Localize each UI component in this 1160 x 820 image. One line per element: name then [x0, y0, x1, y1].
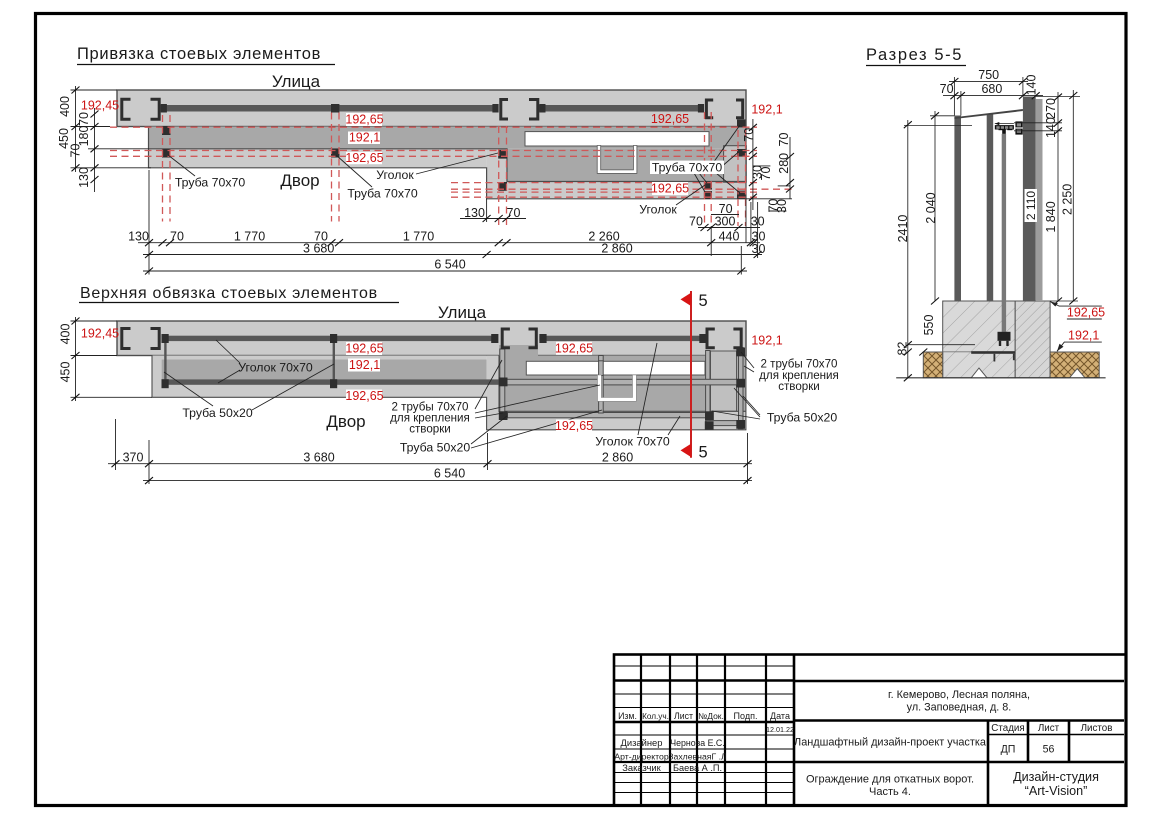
svg-text:створки: створки — [778, 380, 820, 393]
svg-text:Труба 50х20: Труба 50х20 — [182, 406, 252, 420]
svg-text:70: 70 — [77, 112, 91, 126]
svg-text:Дизайнер: Дизайнер — [621, 737, 663, 748]
svg-text:450: 450 — [59, 362, 73, 383]
svg-text:70: 70 — [689, 215, 703, 229]
svg-text:70: 70 — [777, 133, 791, 147]
svg-text:1 840: 1 840 — [1044, 201, 1058, 232]
svg-text:Ограждение для откатных ворот.: Ограждение для откатных ворот. — [806, 774, 974, 786]
svg-text:Заказчик: Заказчик — [622, 762, 661, 773]
svg-text:270: 270 — [1044, 98, 1058, 119]
svg-text:“Art-Vision”: “Art-Vision” — [1025, 784, 1088, 798]
svg-text:70: 70 — [69, 144, 83, 158]
svg-text:192,65: 192,65 — [1067, 306, 1105, 320]
svg-text:440: 440 — [719, 229, 740, 243]
svg-text:550: 550 — [922, 315, 936, 336]
svg-text:192,1: 192,1 — [349, 131, 380, 145]
svg-text:130: 130 — [77, 167, 91, 188]
svg-text:Кол.уч.: Кол.уч. — [642, 712, 669, 721]
svg-text:Уголок 70х70: Уголок 70х70 — [238, 360, 313, 374]
svg-text:1 770: 1 770 — [403, 229, 434, 243]
svg-text:192,65: 192,65 — [345, 151, 383, 165]
svg-text:12.01.22: 12.01.22 — [766, 725, 794, 734]
svg-text:ул. Заповедная, д. 8.: ул. Заповедная, д. 8. — [907, 702, 1012, 714]
svg-text:Труба 50х20: Труба 50х20 — [767, 411, 837, 425]
svg-text:Двор: Двор — [326, 412, 365, 431]
svg-text:192,1: 192,1 — [1068, 329, 1099, 343]
svg-text:2 040: 2 040 — [924, 192, 938, 223]
svg-text:140: 140 — [1044, 117, 1058, 138]
svg-text:192,65: 192,65 — [651, 182, 689, 196]
svg-text:70: 70 — [742, 128, 756, 142]
svg-text:Двор: Двор — [280, 171, 319, 190]
svg-text:192,65: 192,65 — [651, 112, 689, 126]
svg-text:192,1: 192,1 — [751, 103, 782, 117]
svg-text:створки: створки — [409, 423, 451, 436]
svg-text:Лист: Лист — [674, 711, 693, 721]
svg-text:Уголок: Уголок — [639, 203, 677, 217]
svg-text:6 540: 6 540 — [434, 467, 465, 481]
svg-text:70: 70 — [940, 82, 954, 96]
svg-text:70: 70 — [507, 206, 521, 220]
svg-text:Улица: Улица — [272, 72, 321, 91]
svg-text:1 770: 1 770 — [234, 229, 265, 243]
svg-text:Баева А .П.: Баева А .П. — [673, 763, 722, 773]
svg-text:2 110: 2 110 — [1024, 191, 1038, 220]
svg-text:30: 30 — [775, 199, 789, 213]
svg-text:192,65: 192,65 — [345, 113, 383, 127]
svg-text:192,45: 192,45 — [81, 327, 119, 341]
svg-text:82: 82 — [896, 342, 910, 356]
svg-text:Разрез 5-5: Разрез 5-5 — [866, 46, 963, 64]
svg-text:Уголок 70х70: Уголок 70х70 — [595, 435, 670, 449]
svg-text:192,45: 192,45 — [81, 99, 119, 113]
svg-text:Часть 4.: Часть 4. — [869, 786, 911, 798]
svg-text:3 680: 3 680 — [303, 450, 334, 464]
svg-text:2410: 2410 — [896, 215, 910, 243]
svg-text:Верхняя обвязка стоевых элемен: Верхняя обвязка стоевых элементов — [80, 285, 378, 302]
svg-text:Арт-директор: Арт-директор — [614, 752, 669, 762]
svg-text:192,65: 192,65 — [555, 419, 593, 433]
svg-text:680: 680 — [981, 82, 1002, 96]
svg-text:370: 370 — [123, 450, 144, 464]
svg-text:30: 30 — [751, 215, 765, 229]
svg-text:750: 750 — [978, 68, 999, 82]
svg-text:№Док.: №Док. — [698, 711, 724, 721]
svg-text:56: 56 — [1043, 744, 1055, 756]
svg-text:400: 400 — [58, 96, 72, 117]
svg-text:280: 280 — [777, 153, 791, 174]
svg-text:2 250: 2 250 — [1060, 184, 1074, 215]
svg-text:Привязка стоевых элементов: Привязка стоевых элементов — [77, 45, 321, 63]
svg-text:180: 180 — [77, 126, 91, 147]
svg-text:3 680: 3 680 — [303, 242, 334, 256]
svg-text:130: 130 — [128, 229, 149, 243]
svg-text:Труба 70х70: Труба 70х70 — [652, 161, 722, 175]
svg-text:Труба 50х20: Труба 50х20 — [400, 441, 470, 455]
svg-text:Листов: Листов — [1081, 723, 1113, 734]
svg-text:6 540: 6 540 — [434, 258, 465, 272]
svg-text:Лист: Лист — [1038, 723, 1060, 734]
svg-text:300: 300 — [715, 215, 736, 229]
svg-text:192,1: 192,1 — [349, 358, 380, 372]
svg-text:2 860: 2 860 — [602, 450, 633, 464]
svg-text:Подп.: Подп. — [734, 711, 758, 721]
svg-text:Труба 70х70: Труба 70х70 — [175, 176, 245, 190]
svg-text:5: 5 — [699, 444, 708, 462]
svg-text:70: 70 — [170, 229, 184, 243]
svg-text:130: 130 — [464, 206, 485, 220]
svg-text:Ландшафтный дизайн-проект учас: Ландшафтный дизайн-проект участка — [794, 737, 987, 749]
svg-text:Стадия: Стадия — [991, 723, 1024, 734]
svg-text:192,65: 192,65 — [345, 342, 383, 356]
svg-text:ДП: ДП — [1001, 744, 1016, 756]
svg-text:400: 400 — [59, 324, 73, 345]
svg-text:Дизайн-студия: Дизайн-студия — [1013, 770, 1099, 784]
svg-text:192,65: 192,65 — [555, 341, 593, 355]
svg-text:70: 70 — [759, 167, 773, 181]
svg-text:30: 30 — [752, 242, 766, 256]
svg-text:2 860: 2 860 — [601, 242, 632, 256]
svg-text:Чернова Е.С.: Чернова Е.С. — [670, 738, 724, 748]
svg-text:ЗахлевнаяГ .Л: ЗахлевнаяГ .Л — [668, 752, 727, 762]
svg-text:Труба 70х70: Труба 70х70 — [347, 187, 417, 201]
svg-text:г. Кемерово, Лесная поляна,: г. Кемерово, Лесная поляна, — [888, 689, 1030, 701]
svg-text:140: 140 — [1025, 75, 1039, 96]
svg-text:Изм.: Изм. — [618, 711, 637, 721]
svg-text:Улица: Улица — [438, 303, 487, 322]
svg-text:5: 5 — [699, 292, 708, 310]
svg-text:Дата: Дата — [770, 711, 790, 721]
svg-text:192,1: 192,1 — [751, 334, 782, 348]
svg-text:192,65: 192,65 — [345, 389, 383, 403]
svg-text:Уголок: Уголок — [376, 168, 414, 182]
